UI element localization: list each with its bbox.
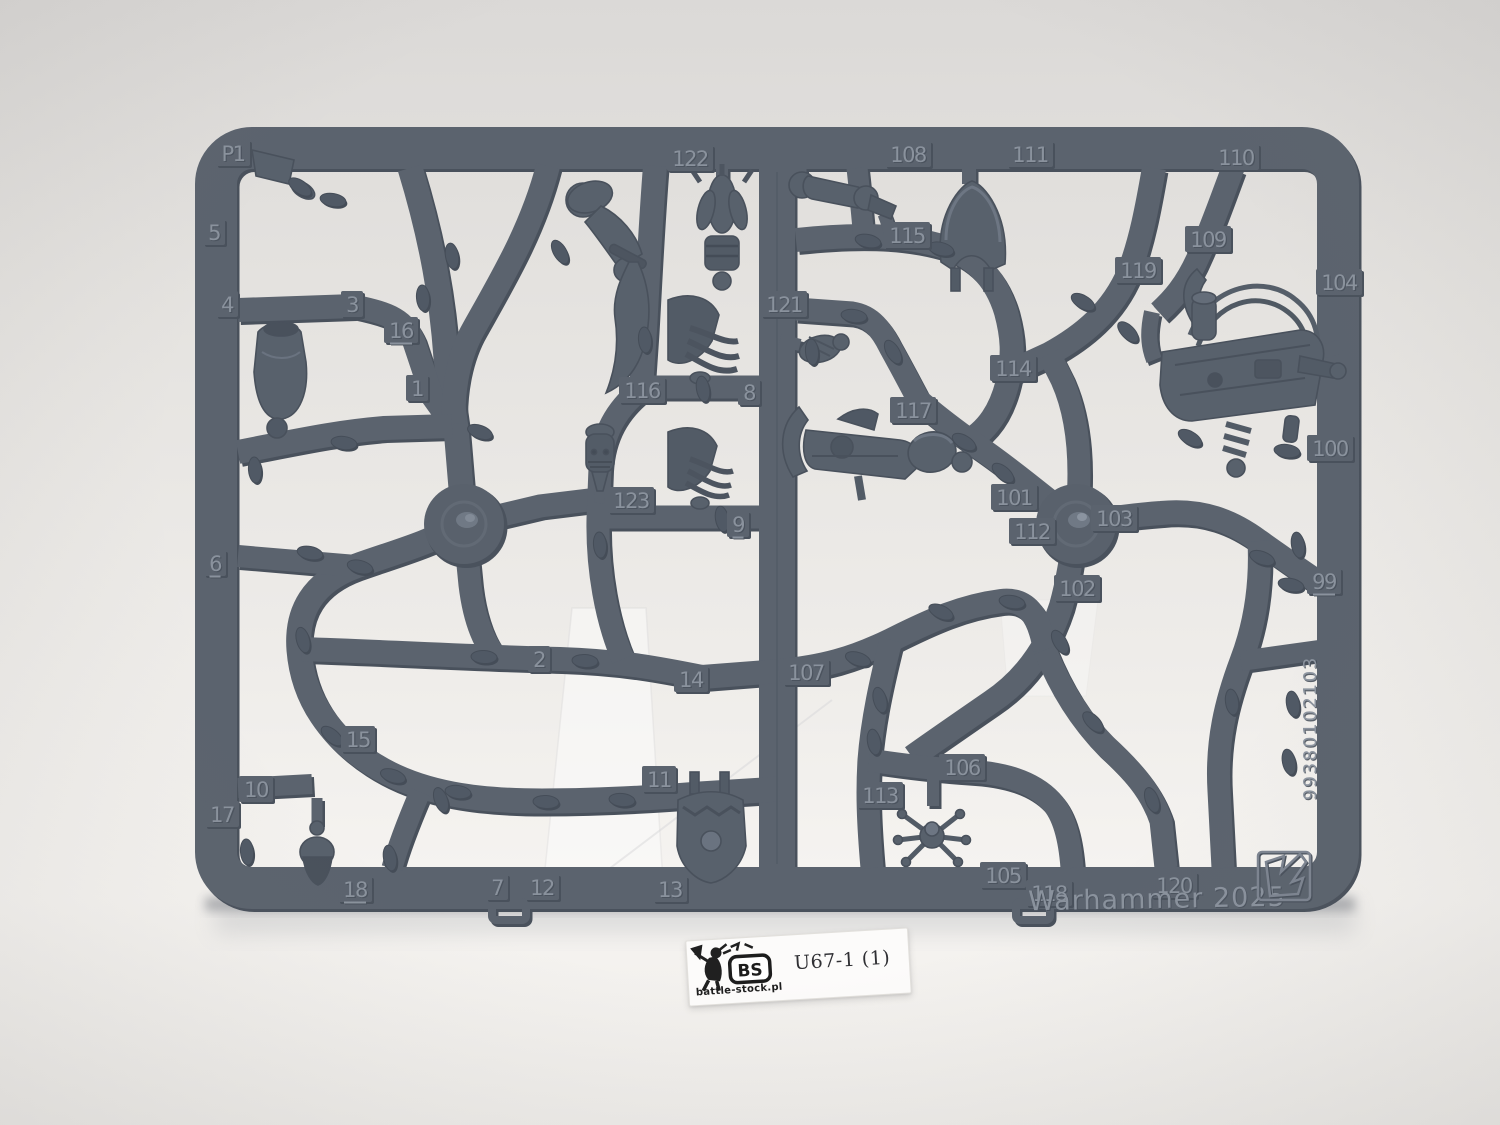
- svg-text:P1: P1: [221, 142, 244, 166]
- injection-hub-left: [424, 484, 508, 568]
- svg-text:15: 15: [346, 728, 370, 752]
- part-torso: [254, 322, 307, 438]
- part-grenade-121: [796, 331, 849, 366]
- part-number-label: 99: [727, 511, 751, 539]
- part-number-label: 111111: [1007, 141, 1055, 169]
- svg-text:100: 100: [1312, 437, 1348, 461]
- svg-text:10: 10: [244, 778, 268, 802]
- part-number-label: 1616: [384, 317, 420, 345]
- svg-text:123: 123: [613, 489, 649, 513]
- svg-text:110: 110: [1218, 146, 1254, 170]
- part-number-label: 88: [738, 379, 762, 407]
- part-number-label: 44: [216, 291, 240, 319]
- svg-text:122: 122: [672, 147, 708, 171]
- svg-text:6: 6: [209, 552, 222, 576]
- part-number-label: 9999: [1307, 568, 1343, 596]
- svg-text:9: 9: [732, 513, 744, 537]
- svg-text:111: 111: [1012, 143, 1048, 167]
- svg-text:BS: BS: [737, 960, 763, 981]
- serial-code-text: 99380102103 99380102103: [1301, 656, 1322, 802]
- part-number-label: 107107: [783, 659, 831, 687]
- svg-text:7: 7: [491, 876, 503, 900]
- part-number-label: 1010: [239, 776, 275, 804]
- part-tube-arm-9: [668, 428, 733, 509]
- part-number-label: 105105: [980, 862, 1028, 890]
- part-number-label: 103103: [1091, 505, 1139, 533]
- part-number-label: 115115: [884, 222, 932, 250]
- part-number-label: 1515: [341, 726, 377, 754]
- part-number-label: 113113: [857, 782, 905, 810]
- svg-text:108: 108: [890, 143, 926, 167]
- svg-text:13: 13: [658, 878, 682, 902]
- svg-text:114: 114: [995, 357, 1032, 381]
- part-number-label: 33: [341, 291, 365, 319]
- part-number-label: 123123: [608, 487, 656, 515]
- svg-text:8: 8: [743, 381, 755, 405]
- svg-text:102: 102: [1059, 577, 1095, 601]
- brand-text: Warhammer 2025 Warhammer 2025: [1028, 882, 1287, 919]
- svg-text:11: 11: [647, 768, 671, 792]
- svg-text:119: 119: [1120, 259, 1156, 283]
- part-number-label: 1212: [525, 874, 561, 902]
- part-number-label: 100100: [1307, 435, 1355, 463]
- svg-text:18: 18: [343, 878, 367, 902]
- svg-text:4: 4: [221, 293, 234, 317]
- svg-text:109: 109: [1190, 228, 1226, 252]
- svg-text:107: 107: [788, 661, 824, 685]
- svg-text:116: 116: [624, 379, 661, 403]
- svg-text:101: 101: [996, 486, 1032, 510]
- svg-text:2: 2: [533, 648, 545, 672]
- svg-text:12: 12: [530, 876, 554, 900]
- part-number-label: 112112: [1009, 518, 1057, 546]
- part-number-label: 101101: [991, 484, 1039, 512]
- svg-text:105: 105: [985, 864, 1021, 888]
- part-number-label: 122122: [667, 145, 715, 173]
- svg-text:113: 113: [862, 784, 898, 808]
- part-number-label: 1717: [205, 801, 241, 829]
- part-number-label: 22: [528, 646, 552, 674]
- part-dagger-arm: [563, 176, 649, 393]
- part-tube-arm-8: [668, 296, 739, 384]
- label-card: BS battle-stock.pl U67-1 (1): [685, 927, 912, 1006]
- label-card-code: U67-1 (1): [783, 945, 909, 974]
- svg-text:Warhammer 2025: Warhammer 2025: [1028, 882, 1286, 917]
- part-number-label: 108108: [885, 141, 933, 169]
- part-number-label: 121121: [761, 291, 809, 319]
- part-number-label: 1313: [653, 876, 689, 904]
- svg-text:14: 14: [679, 668, 704, 692]
- part-number-label: 117117: [890, 397, 938, 425]
- battle-stock-stamp: BS battle-stock.pl: [686, 938, 785, 1004]
- part-flame-torch: [692, 164, 752, 290]
- svg-text:121: 121: [766, 293, 802, 317]
- part-number-label: P1P1: [216, 140, 252, 168]
- svg-text:17: 17: [210, 803, 234, 827]
- sprue-frame: [216, 130, 1344, 923]
- part-number-label: 11: [406, 375, 430, 403]
- svg-text:16: 16: [389, 319, 414, 343]
- svg-text:112: 112: [1014, 520, 1050, 544]
- photo-scene: P1P1554433161611661221221161168812312399…: [0, 0, 1500, 1125]
- svg-text:1: 1: [411, 377, 423, 401]
- svg-text:117: 117: [895, 399, 931, 423]
- svg-text:115: 115: [889, 224, 925, 248]
- svg-text:103: 103: [1096, 507, 1132, 531]
- part-number-label: 1111: [642, 766, 678, 794]
- part-number-label: 106106: [939, 754, 987, 782]
- part-number-label: 116116: [619, 377, 667, 405]
- part-number-label: 102102: [1054, 575, 1102, 603]
- part-number-label: 66: [204, 550, 228, 578]
- svg-text:106: 106: [944, 756, 981, 780]
- svg-text:99380102103: 99380102103: [1301, 656, 1321, 800]
- svg-text:5: 5: [208, 221, 220, 245]
- part-number-label: 119119: [1115, 257, 1163, 285]
- part-number-label: 114114: [990, 355, 1038, 383]
- part-number-label: 77: [486, 874, 510, 902]
- part-servo-spider-105: [894, 810, 971, 867]
- part-number-label: 110110: [1213, 144, 1261, 172]
- part-number-label: 55: [203, 219, 227, 247]
- part-number-label: 1414: [674, 666, 710, 694]
- svg-text:104: 104: [1321, 271, 1358, 295]
- svg-text:3: 3: [346, 293, 358, 317]
- part-arm-108: [789, 172, 896, 219]
- part-number-label: 1818: [338, 876, 374, 904]
- part-number-label: 104104: [1316, 269, 1364, 297]
- svg-text:99: 99: [1312, 570, 1336, 594]
- part-number-label: 109109: [1185, 226, 1233, 254]
